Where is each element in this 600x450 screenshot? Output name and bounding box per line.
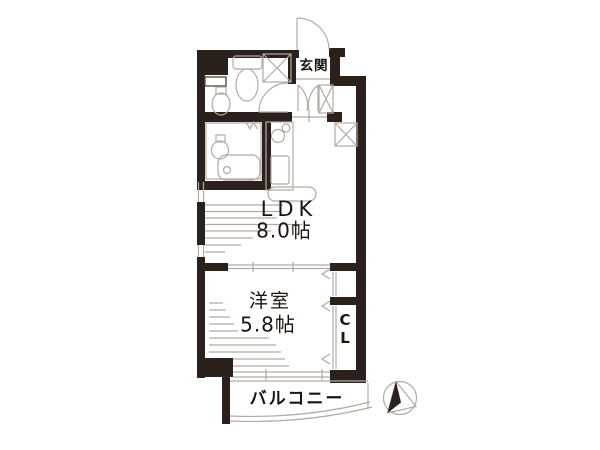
bathtub-icon bbox=[218, 155, 260, 180]
closet-letter-c: C bbox=[339, 311, 350, 329]
room-label-ldk: LDK bbox=[261, 198, 318, 220]
toilet-icon bbox=[233, 56, 262, 101]
room-label-genkan: 玄関 bbox=[300, 59, 329, 73]
shoe-closet-doors-icon bbox=[298, 85, 318, 111]
room-label-western: 洋室 bbox=[249, 292, 291, 312]
washbasin-icon bbox=[212, 87, 230, 115]
pipe-shaft-icon bbox=[263, 54, 291, 82]
sliding-door-icon bbox=[228, 262, 330, 272]
floor-plan: 玄関 LDK 8.0帖 洋室 5.8帖 C L バルコニー bbox=[0, 0, 600, 450]
pipe-shaft-icon bbox=[319, 85, 333, 113]
room-label-closet: C L bbox=[339, 311, 350, 347]
room-label-ldk-size: 8.0帖 bbox=[256, 221, 312, 242]
room-label-western-size: 5.8帖 bbox=[240, 315, 296, 336]
shelf-box bbox=[205, 77, 226, 86]
pipe-shaft-icon bbox=[335, 123, 357, 146]
north-compass-icon bbox=[384, 382, 417, 415]
balcony-window-icon bbox=[233, 369, 330, 380]
door-swing-icon bbox=[259, 83, 288, 112]
entrance-door-swing-icon bbox=[297, 18, 329, 50]
room-label-balcony: バルコニー bbox=[250, 391, 345, 409]
closet-letter-l: L bbox=[339, 329, 350, 347]
closet-doors-icon bbox=[322, 269, 336, 369]
bathroom-outline bbox=[206, 123, 261, 179]
kitchen-counter-icon bbox=[266, 122, 316, 201]
